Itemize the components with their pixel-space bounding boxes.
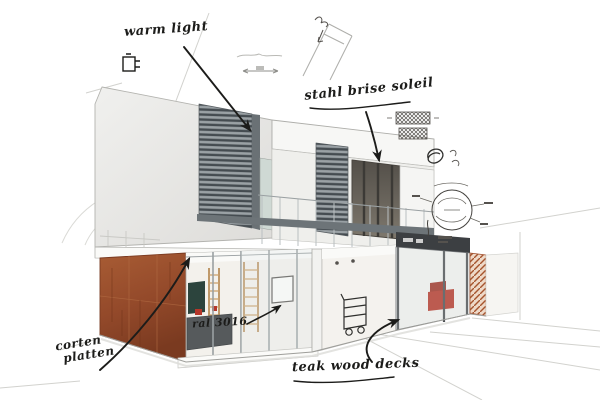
header-label-mark xyxy=(403,238,413,242)
roof-corner-detail-sketch xyxy=(303,17,352,80)
architectural-sketch: warm light stahl brise soleil corten pla… xyxy=(0,0,600,400)
corten-hatch-column xyxy=(470,253,486,316)
dimension-note-sketch xyxy=(237,54,282,73)
wall-sconce xyxy=(351,259,355,263)
red-kettle xyxy=(195,309,202,315)
glass-reflection xyxy=(241,249,312,356)
louver-mullion xyxy=(252,114,260,230)
decking-underline xyxy=(294,377,394,382)
brise-soleil-underline xyxy=(310,102,410,109)
wall-sconce xyxy=(335,261,339,265)
electrical-symbol xyxy=(123,54,140,71)
right-glass-tint xyxy=(396,247,470,330)
right-faint-wall xyxy=(486,253,518,316)
upper-floor xyxy=(95,87,434,262)
header-label-mark xyxy=(416,239,423,243)
center-pillar xyxy=(312,249,322,352)
